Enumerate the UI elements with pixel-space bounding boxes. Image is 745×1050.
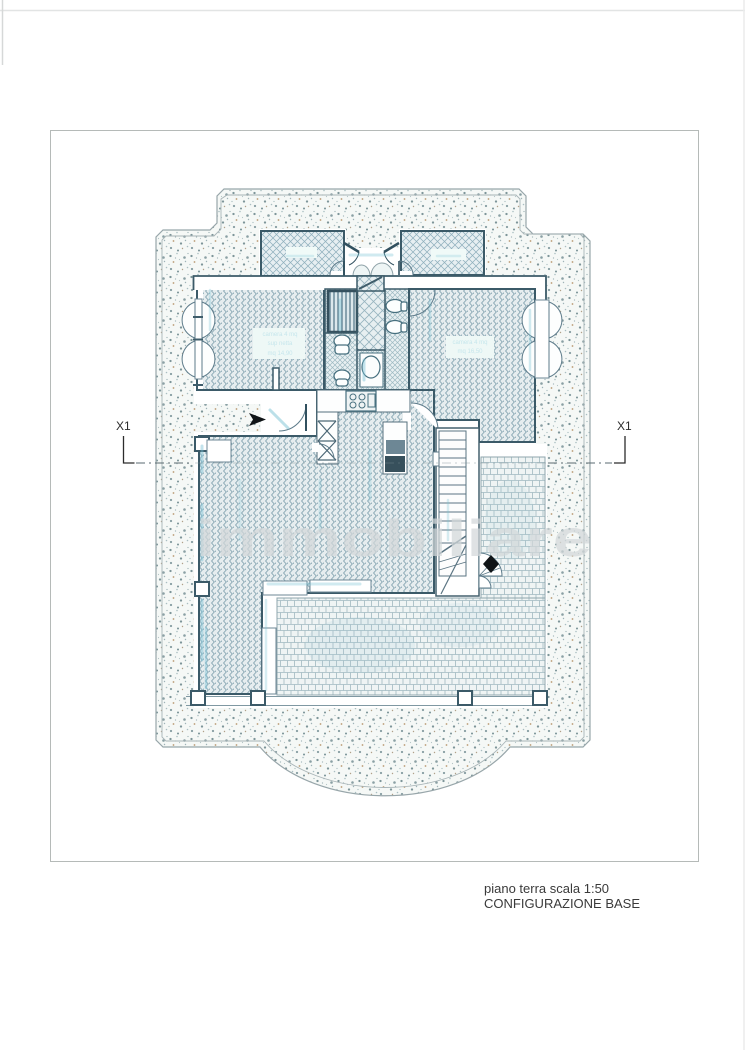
- svg-text:CONFIGURAZIONE BASE: CONFIGURAZIONE BASE: [484, 896, 640, 911]
- svg-text:camera 4 mq: camera 4 mq: [262, 332, 297, 338]
- svg-text:camera 4 mq: camera 4 mq: [452, 340, 487, 346]
- svg-text:mq 14,90: mq 14,90: [267, 351, 293, 357]
- svg-text:mq 16,50: mq 16,50: [457, 349, 483, 355]
- svg-text:immobiliare: immobiliare: [196, 510, 592, 568]
- svg-text:X1: X1: [116, 419, 131, 433]
- svg-text:sup netta: sup netta: [268, 341, 293, 347]
- svg-text:X1: X1: [617, 419, 632, 433]
- svg-text:piano terra scala 1:50: piano terra scala 1:50: [484, 881, 609, 896]
